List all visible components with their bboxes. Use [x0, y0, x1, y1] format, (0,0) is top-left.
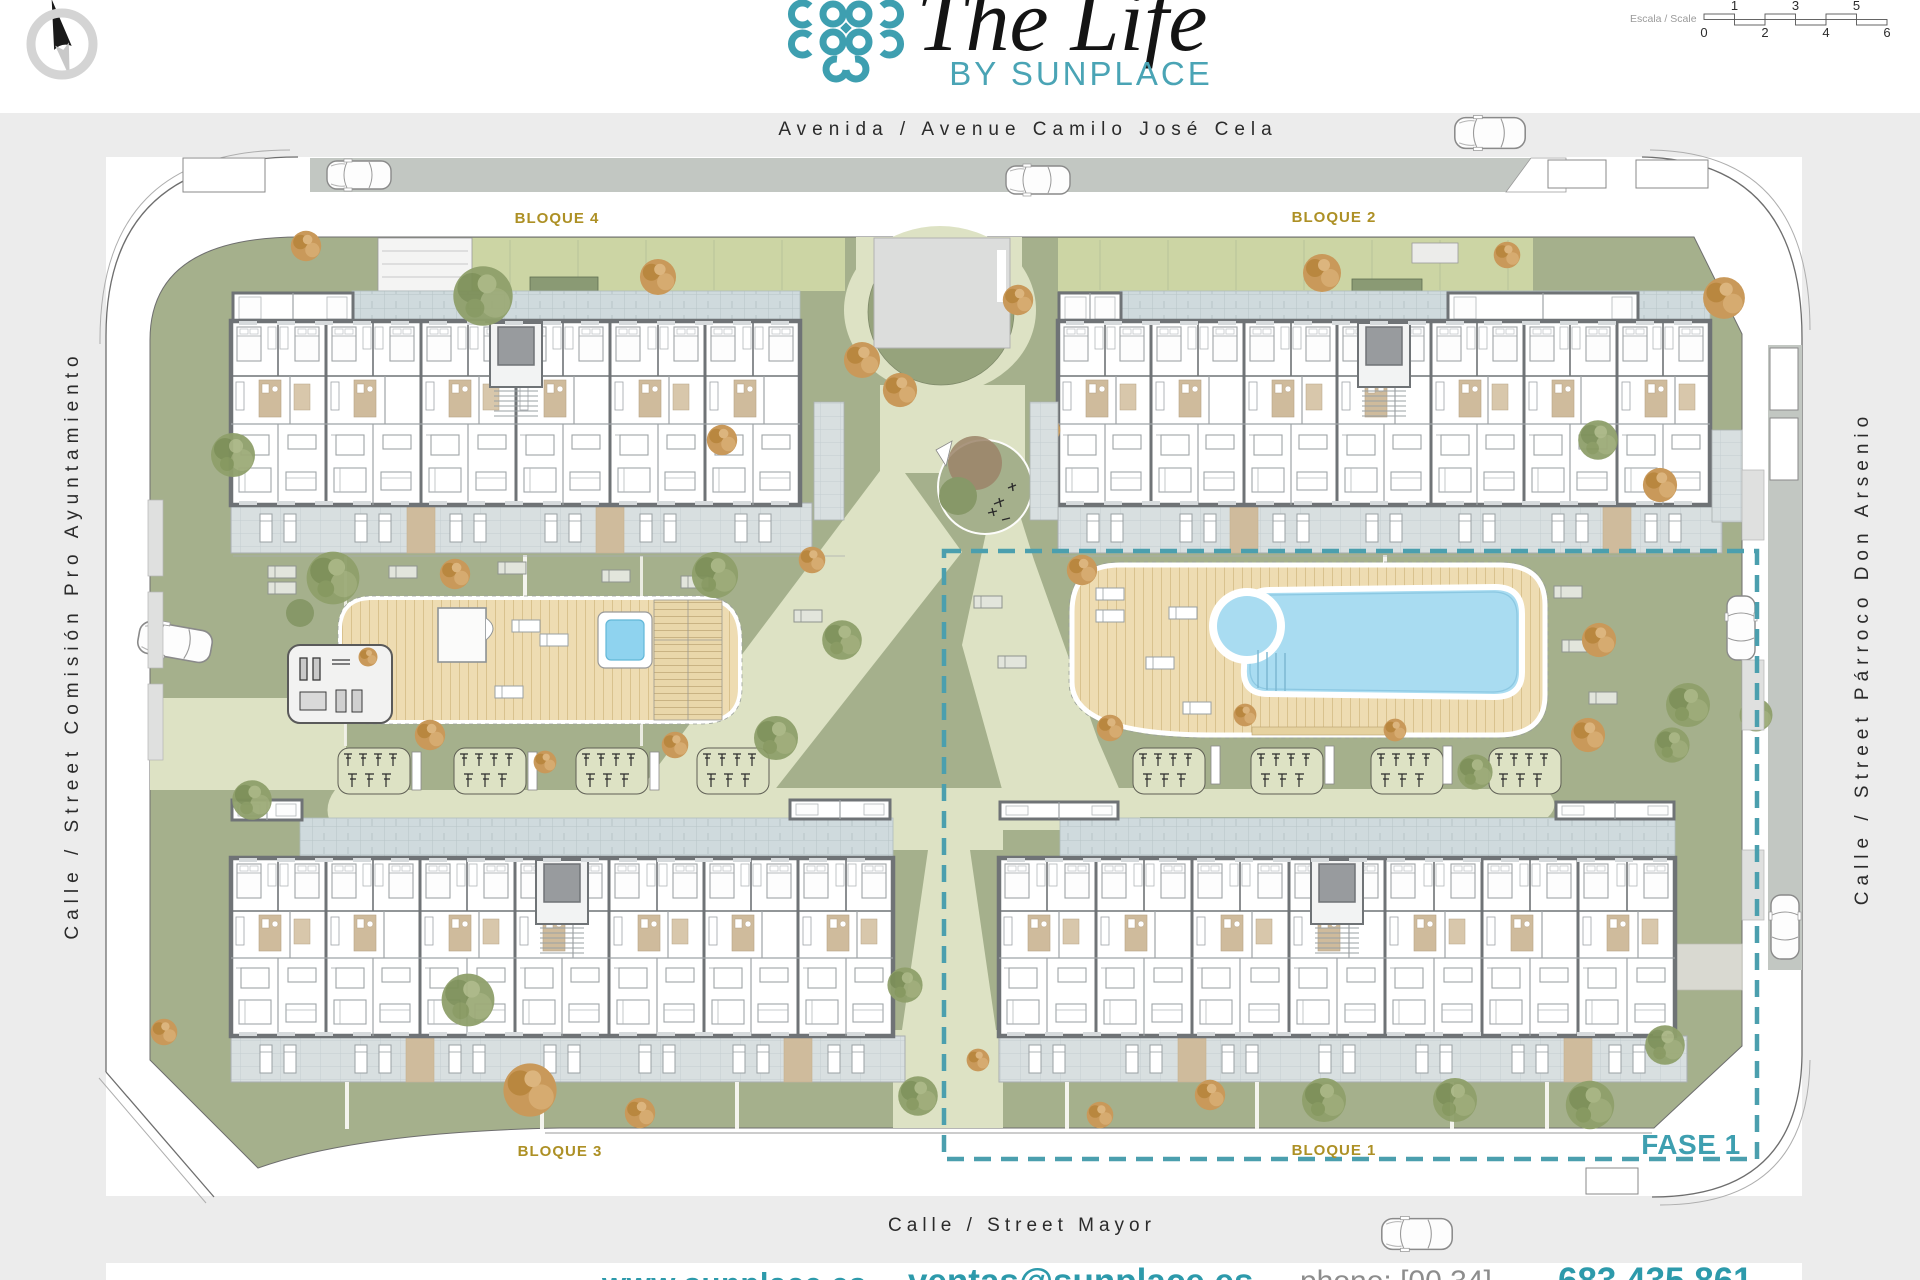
svg-text:2: 2: [1761, 25, 1768, 40]
svg-text:BLOQUE 4: BLOQUE 4: [515, 210, 600, 227]
svg-text:683 435 861: 683 435 861: [1558, 1261, 1753, 1280]
svg-text:6: 6: [1883, 25, 1890, 40]
svg-text:3: 3: [1792, 0, 1799, 13]
svg-text:BLOQUE 2: BLOQUE 2: [1292, 209, 1377, 226]
svg-text:Calle / Street Comisión Pro Ay: Calle / Street Comisión Pro Ayuntamiento: [62, 350, 83, 939]
svg-text:0: 0: [1700, 25, 1707, 40]
svg-text:phone: [00 34]: phone: [00 34]: [1300, 1265, 1492, 1280]
svg-text:FASE 1: FASE 1: [1641, 1129, 1740, 1160]
svg-text:Escala / Scale: Escala / Scale: [1630, 13, 1697, 25]
svg-text:Calle / Street Mayor: Calle / Street Mayor: [888, 1215, 1156, 1236]
svg-text:-: -: [874, 1259, 886, 1280]
svg-text:ventas@sunplace.es: ventas@sunplace.es: [908, 1262, 1253, 1280]
svg-text:Avenida / Avenue Camilo José C: Avenida / Avenue Camilo José Cela: [778, 119, 1277, 140]
svg-text:Calle / Street Párroco Don Ars: Calle / Street Párroco Don Arsenio: [1852, 411, 1873, 905]
svg-text:BLOQUE 3: BLOQUE 3: [518, 1143, 603, 1160]
svg-text:5: 5: [1853, 0, 1860, 13]
svg-text:www.sunplace.es: www.sunplace.es: [601, 1266, 867, 1280]
svg-text:4: 4: [1822, 25, 1829, 40]
svg-text:-: -: [1268, 1259, 1280, 1280]
svg-text:BLOQUE 1: BLOQUE 1: [1292, 1142, 1377, 1159]
svg-text:BY SUNPLACE: BY SUNPLACE: [949, 55, 1212, 92]
svg-text:1: 1: [1731, 0, 1738, 13]
